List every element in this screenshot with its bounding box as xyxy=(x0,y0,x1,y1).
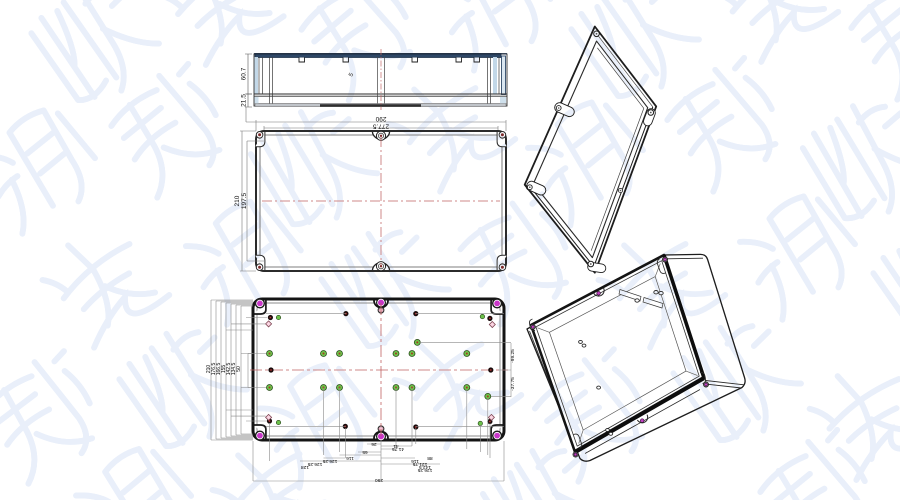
svg-text:-37.75: -37.75 xyxy=(510,377,516,391)
svg-text:26: 26 xyxy=(371,441,377,447)
svg-text:60.7: 60.7 xyxy=(241,67,248,80)
svg-text:65: 65 xyxy=(362,449,368,455)
svg-text:88: 88 xyxy=(427,455,433,461)
svg-text:126.25: 126.25 xyxy=(417,467,432,473)
svg-text:41.75: 41.75 xyxy=(392,446,404,452)
svg-text:21.5: 21.5 xyxy=(241,94,248,107)
svg-text:116: 116 xyxy=(346,455,354,461)
svg-text:-99.25: -99.25 xyxy=(510,349,516,363)
svg-text:290: 290 xyxy=(375,477,383,483)
svg-text:50: 50 xyxy=(236,366,242,372)
svg-text:290: 290 xyxy=(375,115,386,122)
